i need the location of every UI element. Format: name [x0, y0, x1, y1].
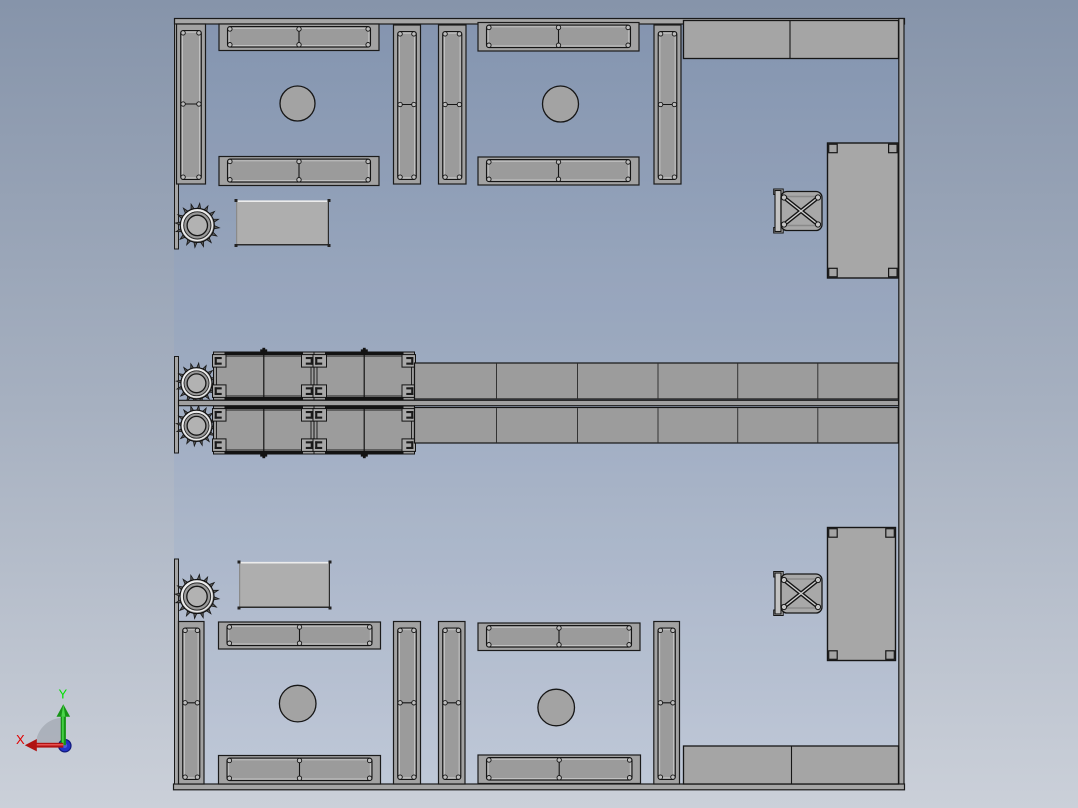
- svg-text:Y: Y: [58, 687, 67, 702]
- svg-text:X: X: [16, 732, 25, 747]
